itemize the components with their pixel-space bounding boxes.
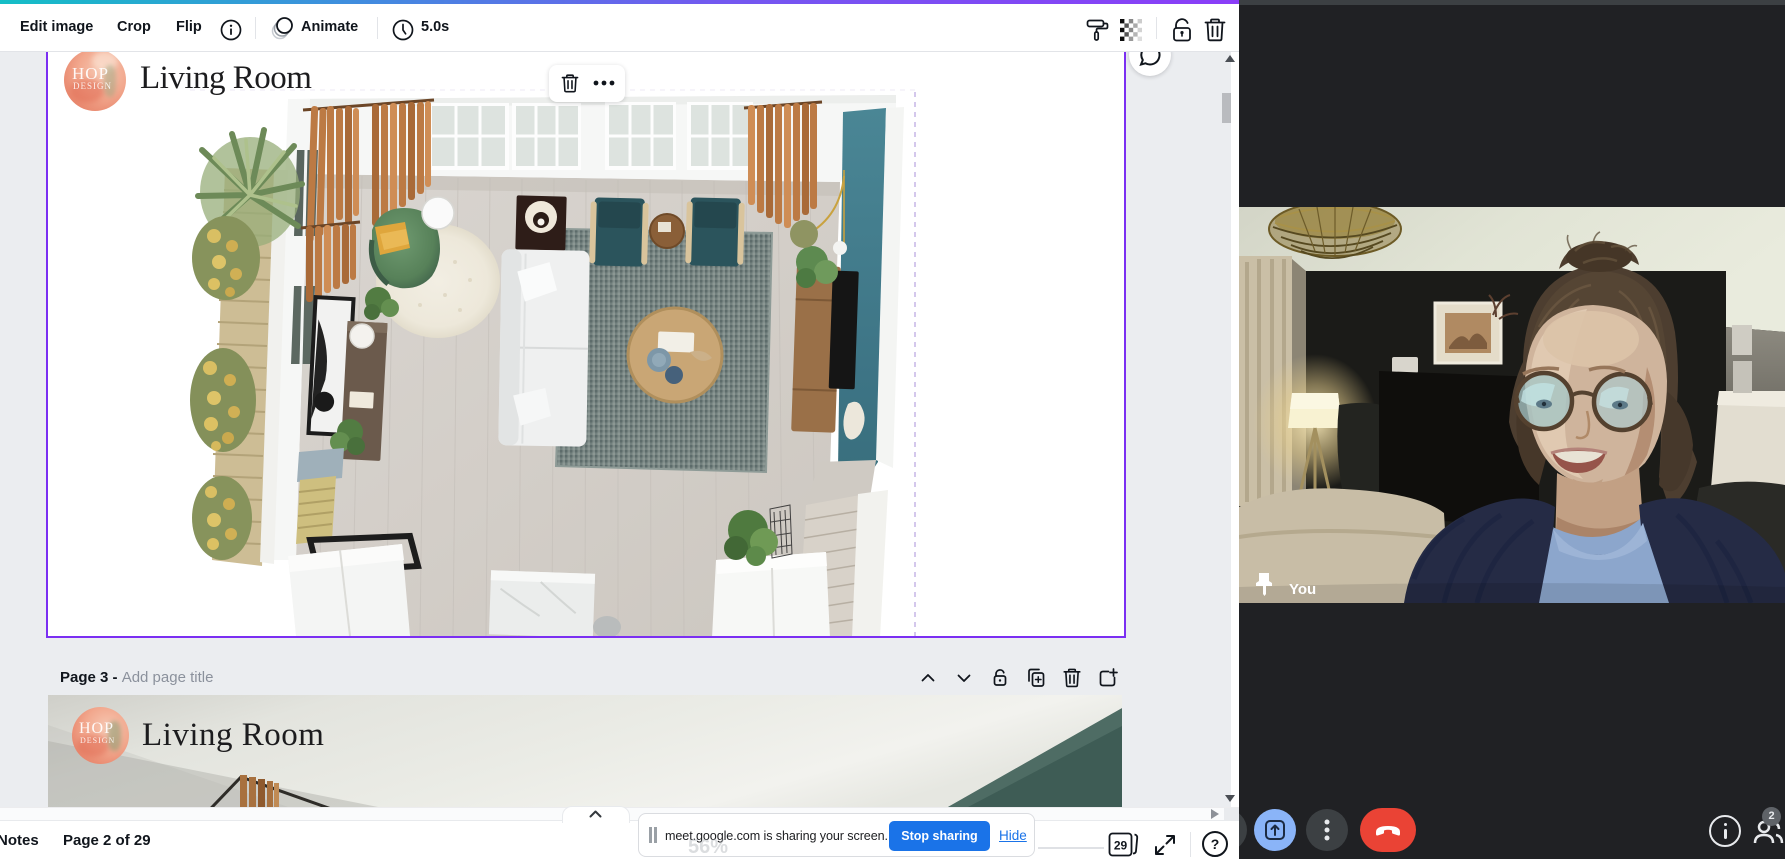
svg-text:?: ? (1211, 836, 1220, 852)
svg-text:29: 29 (1114, 839, 1128, 853)
svg-text:You: You (1289, 581, 1316, 598)
